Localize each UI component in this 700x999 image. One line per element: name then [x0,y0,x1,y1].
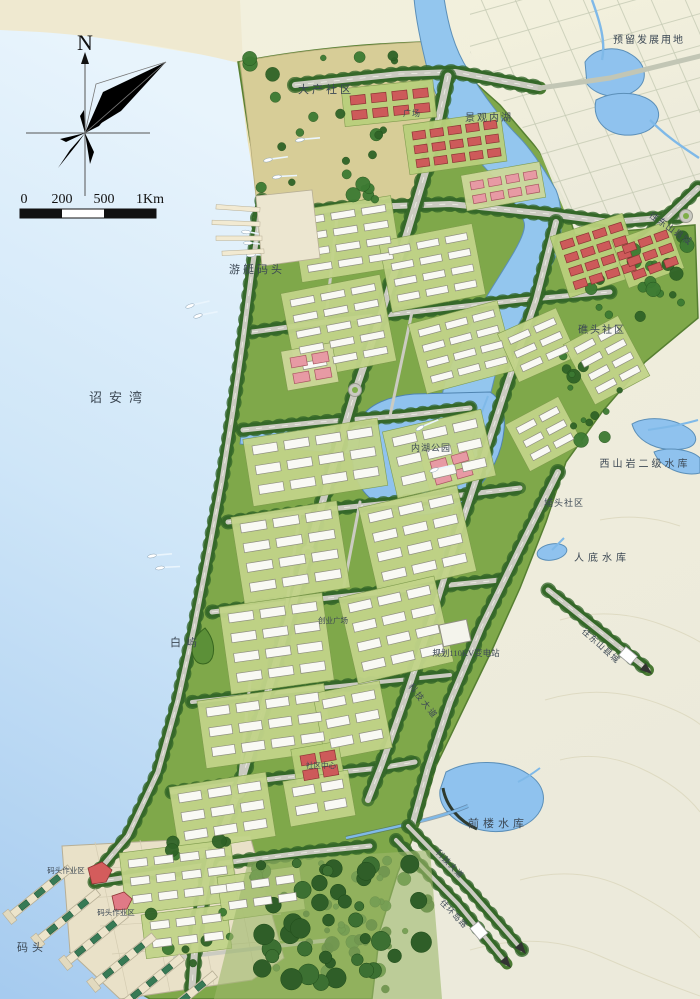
label-reserved-land: 预留发展用地 [613,33,685,46]
scale-tick-1km: 1Km [136,192,164,207]
label-rendi-reservoir: 人底水库 [574,551,630,564]
label-yacht-marina: 游艇码头 [229,262,285,276]
label-jiaotou-community: 礁头社区 [578,323,626,336]
label-dachan-community: 大产社区 [298,82,354,96]
label-qianlou-reservoir: 前楼水库 [468,816,528,830]
label-scenic-inner-lake: 景观内湖 [465,111,513,124]
map-canvas: N 0 200 500 1Km 大产社区广场景观内湖预留发展用地往东山县城游艇码… [0,0,700,999]
label-chuangye-plaza: 创业广场 [318,615,348,625]
label-zhaoan-bay: 诏安湾 [89,390,149,405]
label-community-center: 社区中心 [306,760,336,770]
label-inner-lake-park: 内湖公园 [411,442,451,453]
label-wharf-area-2: 码头作业区 [97,907,135,917]
label-wharf-area-1: 码头作业区 [47,865,85,875]
scale-tick-200: 200 [52,192,73,207]
label-wharf: 码头 [17,941,47,954]
north-label: N [77,30,93,55]
label-plaza-north: 广场 [403,108,421,118]
masterplan-map: N 0 200 500 1Km 大产社区广场景观内湖预留发展用地往东山县城游艇码… [0,0,700,999]
label-putou-community: 埔头社区 [544,497,584,508]
label-substation: 规划110KV变电站 [432,648,500,658]
label-xishanyan-reservoir: 西山岩二级水库 [600,457,691,470]
label-baiyu-island: 白屿 [170,635,202,649]
scale-tick-500: 500 [94,192,115,207]
scale-tick-0: 0 [21,192,28,207]
